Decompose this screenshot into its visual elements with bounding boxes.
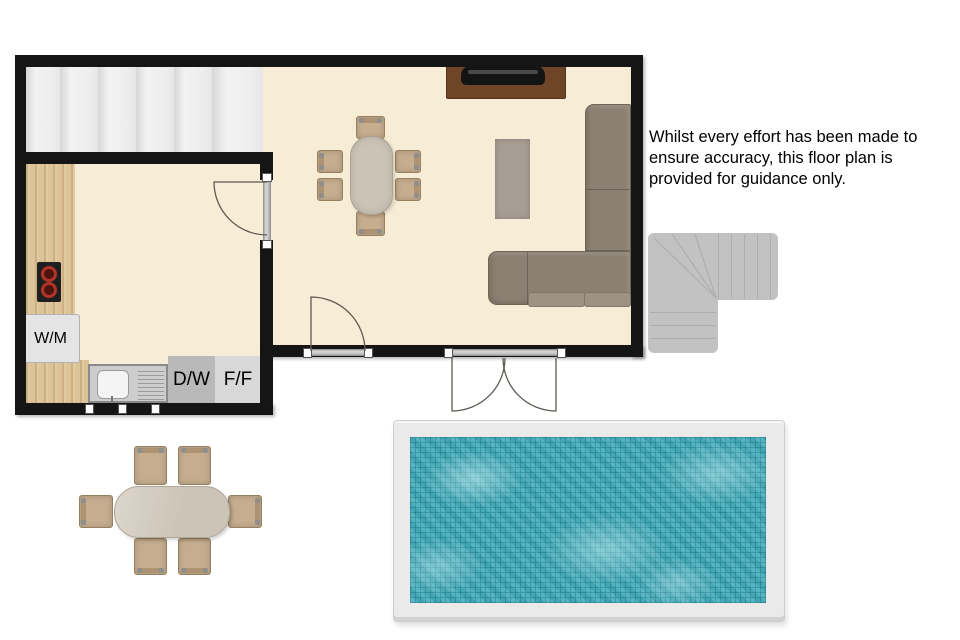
washing-machine: W/M xyxy=(21,314,80,363)
drainer-icon xyxy=(138,370,164,400)
door-jamb xyxy=(557,348,566,358)
sink-tap-icon xyxy=(111,396,113,402)
outdoor-chair xyxy=(134,446,167,485)
floor-plan: W/M D/W F/F xyxy=(0,0,960,640)
kitchen-counter-bottom xyxy=(26,360,89,403)
outdoor-chair xyxy=(178,538,211,575)
sink-basin-icon xyxy=(97,370,129,399)
sofa-seam xyxy=(586,250,630,251)
door-jamb xyxy=(262,240,272,249)
double-door-sill xyxy=(451,349,558,356)
wall-top xyxy=(15,55,643,67)
internal-staircase xyxy=(26,67,263,152)
wall-internal-kitchen-lower xyxy=(260,240,273,415)
disclaimer-line: ensure accuracy, this floor plan is xyxy=(649,148,954,169)
door-jamb xyxy=(364,348,373,358)
outdoor-chair xyxy=(228,495,262,528)
dishwasher: D/W xyxy=(168,356,215,404)
tv-screen-highlight xyxy=(468,70,538,74)
hob-icon xyxy=(37,262,61,302)
kitchen-window-post xyxy=(85,404,94,414)
kitchen-window-post xyxy=(118,404,127,414)
outdoor-chair xyxy=(79,495,113,528)
kitchen-door-sill xyxy=(263,180,271,240)
stair-tread xyxy=(60,67,98,152)
wall-internal-stairs xyxy=(15,152,273,164)
outdoor-dining-table xyxy=(114,486,230,538)
stair-treads xyxy=(650,300,716,351)
tv-icon xyxy=(461,66,545,85)
sink-unit xyxy=(88,364,168,403)
sofa-seam xyxy=(586,189,630,190)
sofa-cushion xyxy=(584,292,631,307)
disclaimer-line: provided for guidance only. xyxy=(649,169,954,190)
stair-tread xyxy=(136,67,174,152)
dining-chair xyxy=(395,150,421,173)
sofa-cushion xyxy=(528,292,585,307)
stair-tread xyxy=(174,67,212,152)
dining-chair xyxy=(317,178,343,201)
stair-tread xyxy=(98,67,136,152)
stair-treads xyxy=(718,234,778,299)
fridge-freezer: F/F xyxy=(215,356,261,404)
door-jamb xyxy=(444,348,453,358)
single-door-sill xyxy=(309,349,365,356)
door-jamb xyxy=(262,173,272,182)
dining-chair xyxy=(395,178,421,201)
wall-bottom-kitchen xyxy=(15,403,273,415)
wall-right xyxy=(631,55,643,357)
hob-burner-icon xyxy=(41,282,57,298)
pool-water xyxy=(410,437,766,603)
stair-tread xyxy=(26,67,60,152)
dining-chair xyxy=(317,150,343,173)
disclaimer-line: Whilst every effort has been made to xyxy=(649,127,954,148)
outdoor-chair xyxy=(178,446,211,485)
outdoor-chair xyxy=(134,538,167,575)
dining-table xyxy=(350,136,393,215)
rug xyxy=(495,139,530,219)
door-jamb xyxy=(303,348,312,358)
disclaimer-text: Whilst every effort has been made to ens… xyxy=(649,127,954,190)
hob-burner-icon xyxy=(41,266,57,282)
wall-left xyxy=(15,55,26,415)
kitchen-window-post xyxy=(151,404,160,414)
stair-tread xyxy=(212,67,263,152)
